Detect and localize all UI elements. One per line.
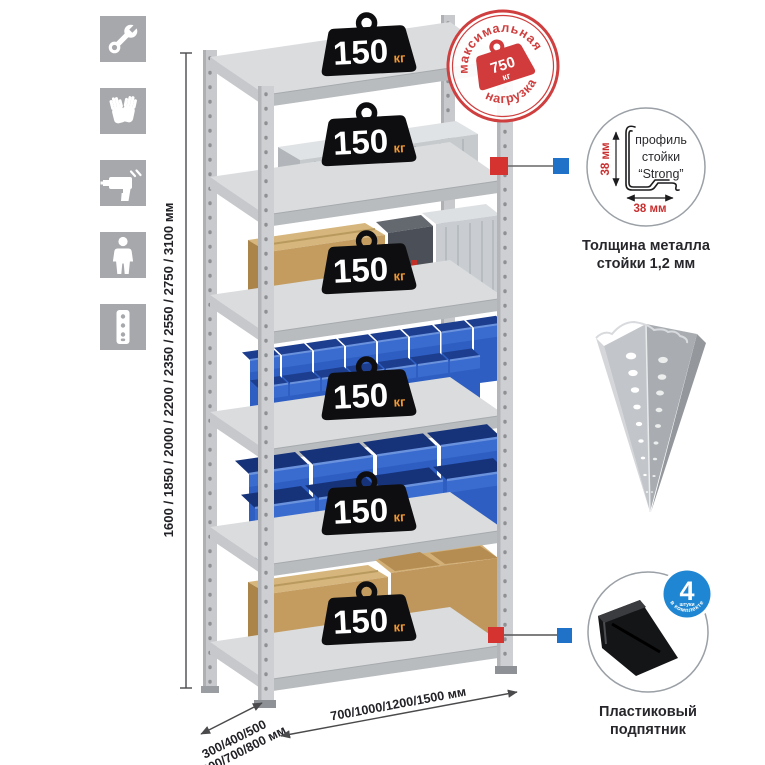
kit-count-sub: штуки <box>679 602 694 608</box>
profile-dim-horizontal: 38 мм <box>633 203 666 215</box>
height-dimension <box>180 53 192 688</box>
load-unit: кг <box>393 619 406 635</box>
foot-caption-2: подпятник <box>610 722 687 738</box>
height-label: 1600 / 1850 / 2000 / 2200 / 2350 / 2550 … <box>161 203 176 538</box>
tools-icons-column <box>100 16 146 350</box>
load-unit: кг <box>393 50 406 66</box>
thickness-caption-2: стойки 1,2 мм <box>597 256 696 272</box>
width-dimension: 700/1000/1200/1500 мм <box>281 685 517 736</box>
load-value: 150 <box>332 491 389 531</box>
wrench-icon <box>100 16 146 62</box>
load-unit: кг <box>393 140 406 156</box>
load-value: 150 <box>332 601 389 641</box>
profile-label-2: стойки <box>642 150 680 164</box>
load-badge-1: 150 кг <box>319 13 417 77</box>
kit-count-badge: 4 штуки в комплекте <box>661 568 714 621</box>
load-value: 150 <box>332 122 389 162</box>
width-label: 700/1000/1200/1500 мм <box>329 685 467 724</box>
profile-dim-vertical: 38 мм <box>600 142 612 175</box>
depth-dimension: 300/400/500 600/700/800 мм <box>194 703 289 765</box>
profile-connector <box>490 157 569 175</box>
connector-red-square <box>488 627 504 643</box>
foot-callout: 4 штуки в комплекте <box>588 568 714 693</box>
angle-post-image <box>596 322 706 512</box>
profile-label-1: профиль <box>635 133 687 147</box>
gloves-icon <box>100 88 146 134</box>
load-unit: кг <box>393 268 406 284</box>
figure-canvas: 1600 / 1850 / 2000 / 2200 / 2350 / 2550 … <box>0 0 765 765</box>
connector-red-square <box>490 157 508 175</box>
profile-callout: 38 мм 38 мм профиль стойки “Strong” <box>587 108 705 226</box>
thickness-caption-1: Толщина металла <box>582 238 711 254</box>
product-infographic: 1600 / 1850 / 2000 / 2200 / 2350 / 2550 … <box>0 0 765 765</box>
foot-connector <box>488 627 572 643</box>
load-unit: кг <box>393 394 406 410</box>
load-unit: кг <box>393 509 406 525</box>
profile-label-3: “Strong” <box>638 167 683 181</box>
rack-post-icon <box>100 304 146 350</box>
load-value: 150 <box>332 32 389 72</box>
foot-caption-1: Пластиковый <box>599 704 697 720</box>
person-icon <box>100 232 146 278</box>
load-value: 150 <box>332 250 389 290</box>
load-badge-2: 150 кг <box>319 103 417 167</box>
drill-icon <box>100 160 146 206</box>
connector-blue-square <box>557 628 572 643</box>
load-value: 150 <box>332 376 389 416</box>
connector-blue-square <box>553 158 569 174</box>
